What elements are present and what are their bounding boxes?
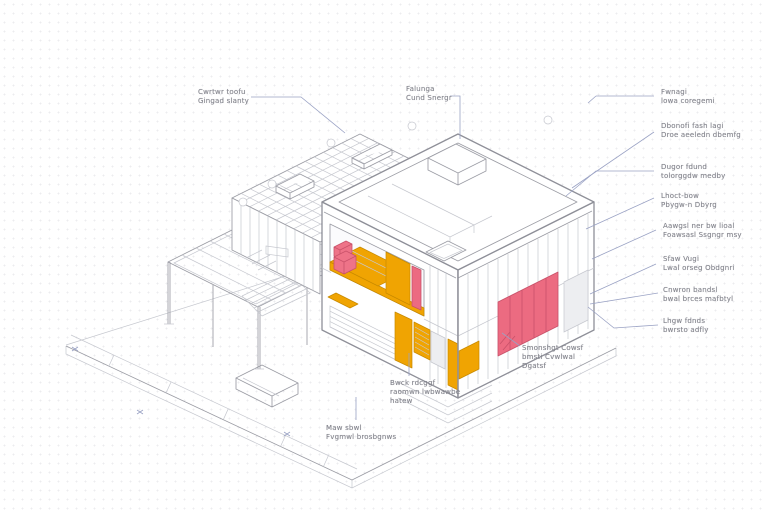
annotation-line: tolorggdw medby: [661, 172, 725, 181]
annotation-top-left: Cwrtwr toofu Gingad slanty: [198, 88, 249, 106]
red-wall-strip: [412, 266, 421, 310]
bench: [236, 365, 298, 407]
annotation-line: Droe aeeledn dbemfg: [661, 131, 741, 140]
annotation-right-7: Cnwron bandsl bwal brces mafbtyl: [663, 286, 733, 304]
annotation-line: Smonshgt Cowsf: [522, 344, 583, 353]
annotation-line: Fwnagi: [661, 88, 715, 97]
annotation-right-3: Dugor fdund tolorggdw medby: [661, 163, 725, 181]
annotation-line: Sfaw Vugi: [663, 255, 735, 264]
annotation-bottom-right: Smonshgt Cowsf bmsti Cvwlwal Dgatsf: [522, 344, 583, 371]
annotation-line: Cund Snergr: [406, 94, 452, 103]
annotation-line: bmsti Cvwlwal: [522, 353, 583, 362]
architectural-axonometric-diagram: Cwrtwr toofu Gingad slanty Falunga Cund …: [0, 0, 768, 512]
annotation-right-6: Sfaw Vugi Lwal orseg Obdgnri: [663, 255, 735, 273]
annotation-line: bwrsto adfly: [663, 326, 709, 335]
annotation-line: hatew: [390, 397, 460, 406]
annotation-top-mid: Falunga Cund Snergr: [406, 85, 452, 103]
annotation-line: Maw sbwl: [326, 424, 396, 433]
annotation-line: Bwck rdcggf: [390, 379, 460, 388]
annotation-line: Lwal orseg Obdgnri: [663, 264, 735, 273]
annotation-bottom-left: Maw sbwl Fvgmwl brosbgnws: [326, 424, 396, 442]
annotation-right-8: Lhgw fdnds bwrsto adfly: [663, 317, 709, 335]
annotation-line: Dugor fdund: [661, 163, 725, 172]
annotation-line: lowa coregemi: [661, 97, 715, 106]
annotation-line: Lhoct-bow: [661, 192, 717, 201]
annotation-bottom-mid: Bwck rdcggf raomwn lwbwawbe hatew: [390, 379, 460, 406]
annotation-right-1: Fwnagi lowa coregemi: [661, 88, 715, 106]
annotation-line: Cwrtwr toofu: [198, 88, 249, 97]
annotation-line: Dbonofi fash lagi: [661, 122, 741, 131]
annotation-line: raomwn lwbwawbe: [390, 388, 460, 397]
annotation-right-5: Aawgsl ner bw lioal Foawsasl Ssgngr msy: [663, 222, 742, 240]
annotation-right-4: Lhoct-bow Pbygw-n Dbyrg: [661, 192, 717, 210]
annotation-line: Dgatsf: [522, 362, 583, 371]
annotation-line: Fvgmwl brosbgnws: [326, 433, 396, 442]
annotation-line: Aawgsl ner bw lioal: [663, 222, 742, 231]
annotation-line: bwal brces mafbtyl: [663, 295, 733, 304]
annotation-line: Lhgw fdnds: [663, 317, 709, 326]
annotation-line: Falunga: [406, 85, 452, 94]
annotation-line: Pbygw-n Dbyrg: [661, 201, 717, 210]
porch-recess: [431, 331, 445, 369]
annotation-line: Gingad slanty: [198, 97, 249, 106]
annotation-right-2: Dbonofi fash lagi Droe aeeledn dbemfg: [661, 122, 741, 140]
annotation-line: Foawsasl Ssgngr msy: [663, 231, 742, 240]
annotation-line: Cnwron bandsl: [663, 286, 733, 295]
